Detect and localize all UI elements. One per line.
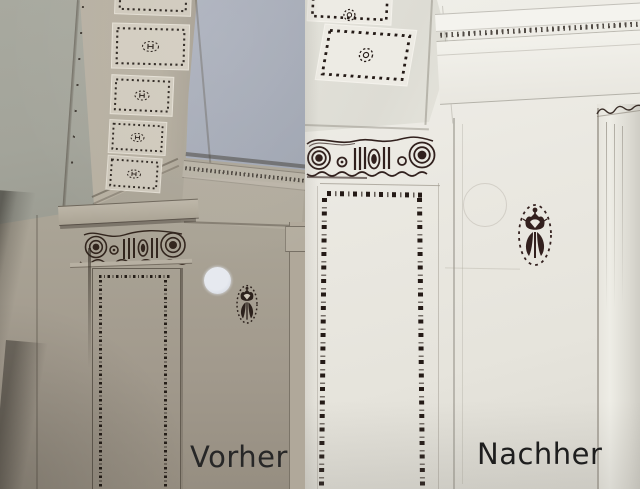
dotted-band-border [99,275,172,278]
dotted-band-border [319,198,327,489]
before-label: Vorher [190,440,288,474]
dotted-band-border [99,280,102,489]
coffer-panel [110,22,190,71]
pilaster-panel-edge [438,183,439,489]
coffer-panel [314,23,418,87]
coffer-panel [306,0,394,26]
pilaster-edge-shadow [181,268,183,489]
photo-after: Nachher [305,0,640,489]
flute-line [614,124,615,309]
corner-shadow [0,340,52,489]
ionic-scroll-frieze [305,128,445,180]
flute-line [606,122,607,312]
dotted-band-border [164,280,167,489]
coffer-panel [105,154,163,194]
wall-edge-line [36,215,38,489]
edge-pilaster [289,222,305,489]
plaster-test-patch [463,183,507,227]
dotted-band-border [417,198,425,489]
plaster-test-patch [204,267,231,294]
before-after-comparison: Vorher [0,0,640,489]
photo-before: Vorher [0,0,305,489]
pilaster-panel-outline [92,268,181,489]
dotted-band-border [327,191,423,197]
pilaster-edge-shadow [88,248,91,368]
pilaster-panel-edge [317,186,318,489]
coffer-panel [114,0,193,17]
coffer-panel [107,118,168,156]
wall-panel-line [445,267,520,269]
thistle-stencil [231,280,263,330]
pilaster-panel-outline [320,183,440,190]
flute-line [622,126,623,306]
fluted-pilaster-edge [597,108,599,489]
edge-pilaster-capital [285,226,305,252]
pilaster-capital-scroll [597,100,640,118]
after-label: Nachher [477,437,602,471]
fluted-pilaster [597,104,640,489]
frieze-band [437,30,640,105]
wall-corner-line [453,118,455,489]
wall-corner-line [462,124,463,484]
thistle-stencil [511,200,559,272]
coffer-panel [109,74,175,118]
